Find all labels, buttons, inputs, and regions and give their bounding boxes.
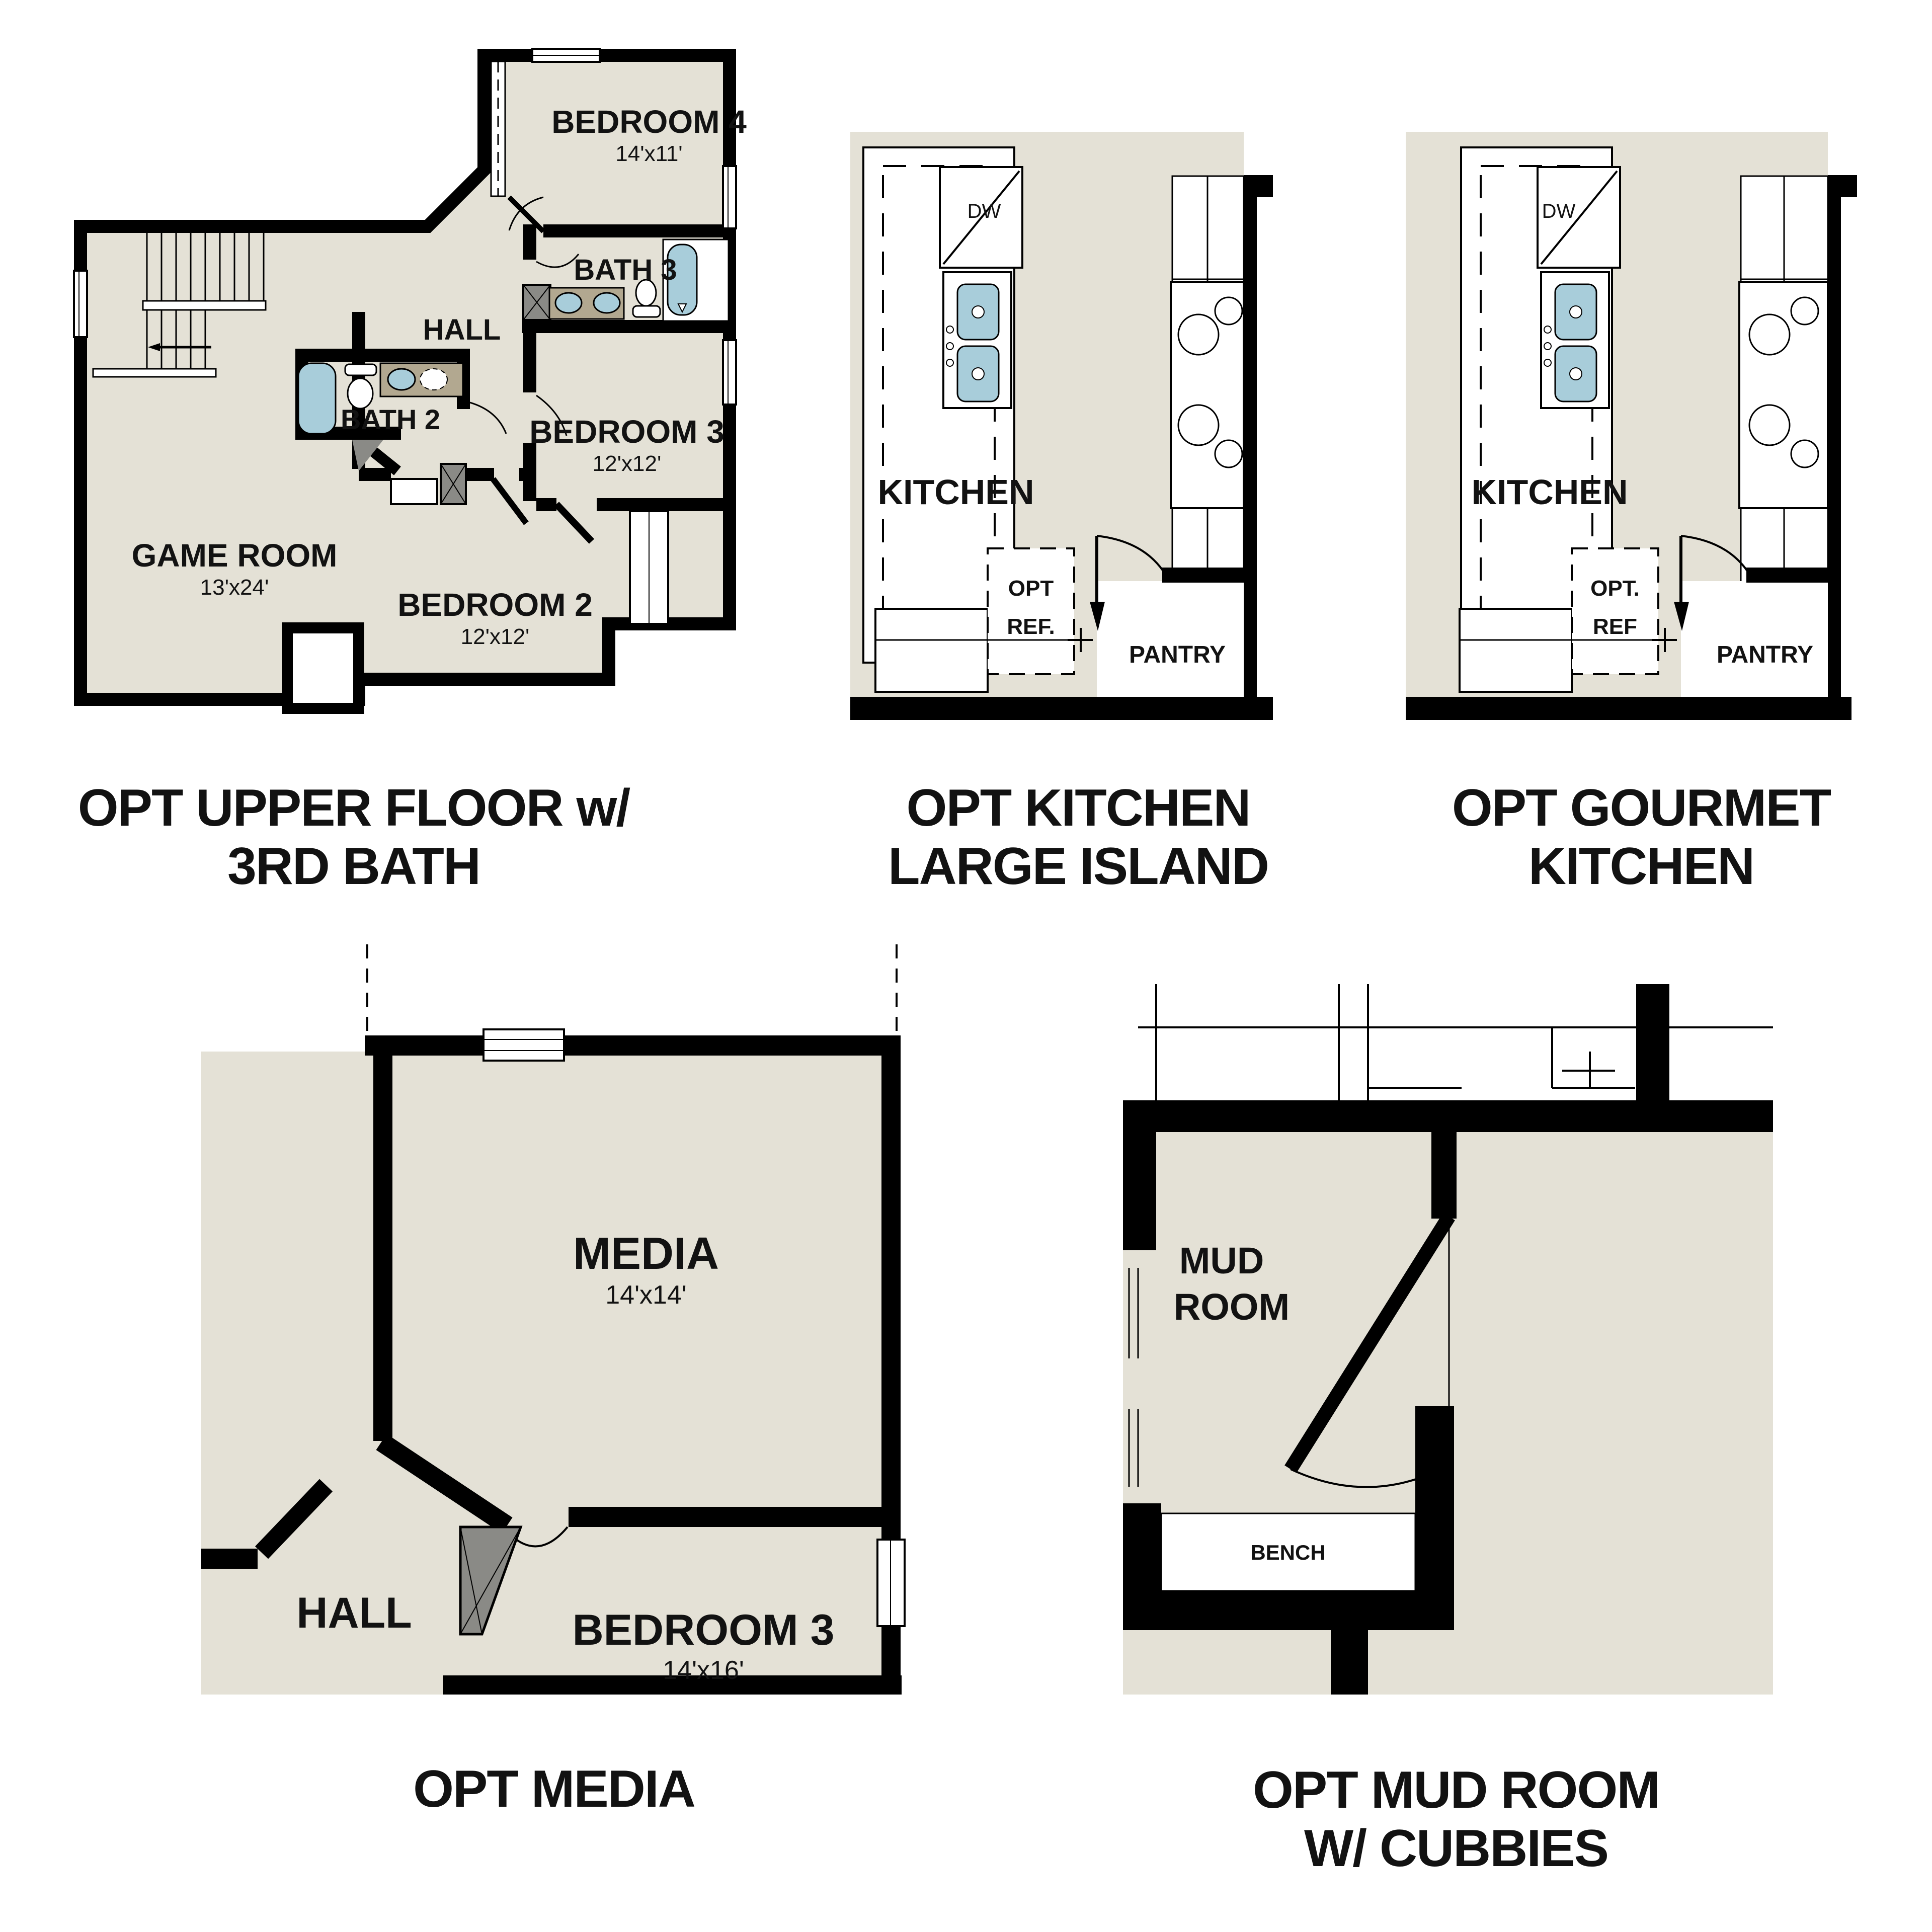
optional-refrigerator — [1572, 548, 1658, 674]
room-label-media: MEDIA — [573, 1231, 719, 1276]
label-opt-ref-line2: REF. — [1007, 616, 1055, 638]
room-label-pantry: PANTRY — [1717, 643, 1813, 667]
caption-gourmet-line1: OPT GOURMET — [1452, 782, 1830, 834]
room-label-bath3: BATH 3 — [574, 256, 677, 285]
window — [484, 1029, 564, 1061]
room-dims-game-room: 13'x24' — [200, 577, 269, 599]
sink — [388, 369, 415, 390]
bathtub — [298, 363, 336, 434]
room-label-game-room: GAME ROOM — [132, 539, 338, 572]
caption-upper-floor-line2: 3RD BATH — [227, 840, 480, 893]
room-label-hall: HALL — [423, 315, 501, 345]
room-label-bedroom4: BEDROOM 4 — [551, 106, 747, 138]
room-label-bedroom2: BEDROOM 2 — [397, 589, 593, 621]
caption-kitchen-island-line2: LARGE ISLAND — [888, 840, 1268, 893]
label-bench: BENCH — [1250, 1542, 1325, 1563]
room-dims-bedroom2: 12'x12' — [461, 626, 530, 648]
label-dw: DW — [968, 201, 1001, 221]
caption-upper-floor-line1: OPT UPPER FLOOR w/ — [78, 782, 630, 834]
label-dw: DW — [1542, 201, 1576, 221]
optional-sink — [420, 369, 447, 390]
room-label-pantry: PANTRY — [1129, 643, 1226, 667]
cooktop — [1171, 282, 1244, 508]
room-dims-media: 14'x14' — [605, 1282, 687, 1308]
plan-kitchen-large-island — [850, 132, 1273, 720]
label-opt-ref-line2: REF — [1593, 616, 1637, 638]
label-opt-ref-line1: OPT — [1008, 578, 1054, 600]
floor-plan-sheet: BEDROOM 4 14'x11' BATH 3 HALL BATH 2 BED… — [0, 0, 1932, 1932]
cooktop — [1739, 282, 1828, 508]
cubbies-linework — [1138, 984, 1773, 1100]
room-label-hall: HALL — [296, 1591, 412, 1635]
room-label-bedroom3: BEDROOM 3 — [573, 1608, 835, 1652]
sink — [594, 293, 620, 313]
caption-mud-room-line1: OPT MUD ROOM — [1253, 1764, 1659, 1816]
room-dims-bedroom4: 14'x11' — [615, 143, 682, 165]
room-label-mud-line1: MUD — [1179, 1242, 1264, 1279]
room-label-kitchen: KITCHEN — [1471, 474, 1628, 510]
room-dims-bedroom3: 14'x16' — [663, 1657, 744, 1683]
caption-mud-room-line2: W/ CUBBIES — [1304, 1822, 1608, 1875]
label-opt-ref-line1: OPT. — [1590, 578, 1640, 600]
room-label-mud-line2: ROOM — [1174, 1289, 1290, 1326]
caption-kitchen-island-line1: OPT KITCHEN — [907, 782, 1250, 834]
caption-gourmet-line2: KITCHEN — [1528, 840, 1754, 893]
plan-mud-room — [1123, 984, 1773, 1695]
room-label-kitchen: KITCHEN — [877, 474, 1034, 510]
plan-linework — [0, 0, 1932, 1932]
room-label-bath2: BATH 2 — [341, 406, 440, 434]
room-dims-bedroom3: 12'x12' — [593, 453, 662, 475]
room-label-bedroom3: BEDROOM 3 — [529, 416, 725, 448]
caption-media: OPT MEDIA — [413, 1763, 695, 1815]
optional-refrigerator — [988, 548, 1074, 674]
plan-media — [201, 944, 905, 1695]
sink — [555, 293, 582, 313]
